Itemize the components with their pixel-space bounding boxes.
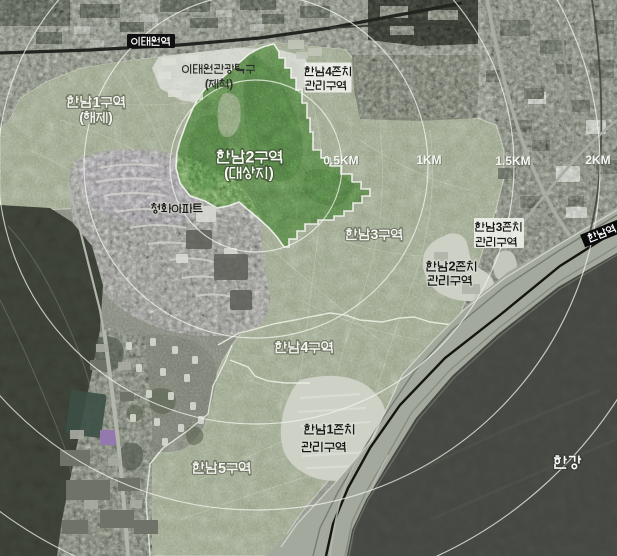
- svg-text:2: 2: [245, 148, 254, 166]
- svg-text:5: 5: [218, 461, 226, 477]
- svg-text:): ): [229, 77, 233, 91]
- svg-text:2: 2: [448, 259, 455, 274]
- svg-text:4: 4: [300, 340, 308, 356]
- svg-text:0.5KM: 0.5KM: [323, 154, 358, 168]
- svg-text:1KM: 1KM: [416, 153, 441, 167]
- svg-text:): ): [269, 165, 274, 182]
- svg-text:3: 3: [371, 227, 379, 243]
- svg-text:(: (: [205, 77, 209, 91]
- svg-text:2KM: 2KM: [585, 153, 610, 167]
- svg-text:3: 3: [496, 220, 503, 234]
- svg-text:4: 4: [325, 64, 332, 78]
- svg-text:1: 1: [326, 422, 333, 437]
- svg-text:1: 1: [92, 95, 100, 111]
- svg-text:): ): [108, 109, 113, 125]
- svg-text:1.5KM: 1.5KM: [495, 154, 530, 168]
- svg-text:(: (: [79, 109, 84, 125]
